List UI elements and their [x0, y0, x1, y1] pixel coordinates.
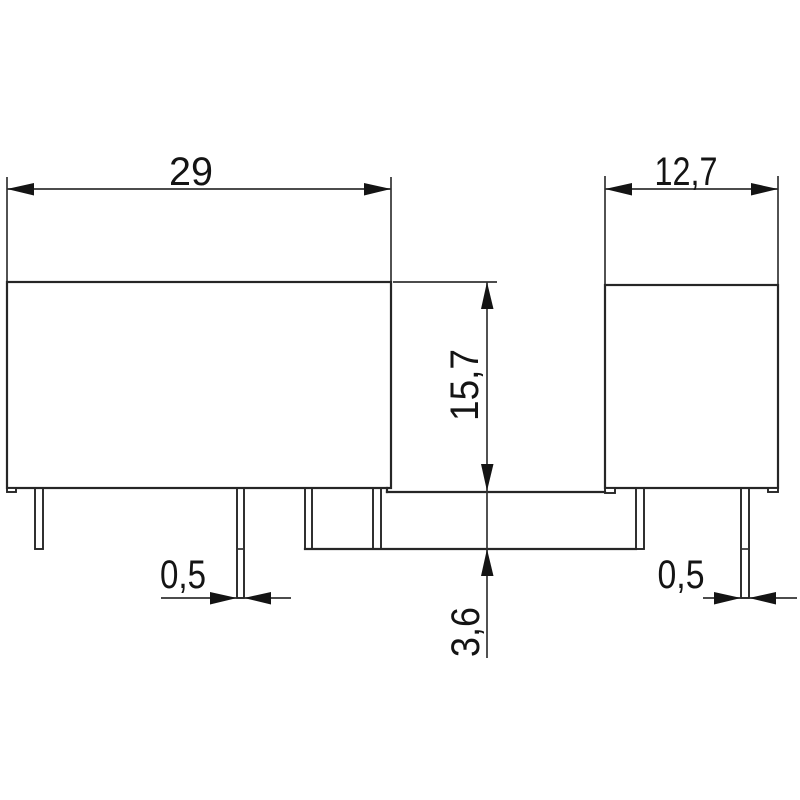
dimension-label-body-height: 15,7: [443, 349, 487, 421]
base-reference-lines: [305, 492, 636, 549]
side-view: [605, 285, 778, 598]
arrowhead-right: [714, 592, 741, 605]
side-left-foot: [605, 488, 615, 493]
side-pin-2: [741, 488, 749, 598]
dimension-label-pin-thickness-side: 0,5: [658, 553, 705, 597]
front-pin-4: [373, 488, 381, 549]
dimension-body-length: 29: [7, 150, 391, 281]
front-pin-2: [237, 488, 244, 598]
side-pin-1: [636, 488, 644, 549]
side-body-outline: [605, 285, 778, 488]
arrowhead-down: [481, 464, 494, 491]
dimension-label-pin-thickness-front: 0,5: [160, 553, 206, 597]
arrowhead-up: [481, 282, 494, 309]
arrowhead-right: [364, 183, 391, 196]
arrowhead-right: [751, 183, 778, 196]
technical-drawing-page: 29 12,7 15,7 3,6 0,: [0, 0, 800, 800]
front-view: [7, 282, 391, 598]
dimension-label-pin-protrusion: 3,6: [444, 607, 488, 657]
front-pin-1: [35, 488, 43, 549]
side-right-foot: [768, 488, 778, 492]
dimension-label-body-width: 12,7: [655, 150, 718, 194]
arrowhead-up: [481, 549, 494, 576]
arrowhead-left: [605, 183, 632, 196]
arrowhead-left: [244, 592, 271, 605]
relay-dimension-drawing: 29 12,7 15,7 3,6 0,: [0, 0, 800, 800]
dimension-body-width: 12,7: [605, 150, 778, 284]
dimension-pin-thickness-side: 0,5: [658, 553, 798, 605]
arrowhead-right: [210, 592, 237, 605]
dimension-pin-thickness-front: 0,5: [160, 553, 291, 605]
front-pin-3: [305, 488, 312, 549]
front-left-foot: [7, 488, 16, 492]
arrowhead-left: [749, 592, 776, 605]
dimension-pin-protrusion: 3,6: [444, 549, 494, 657]
arrowhead-left: [7, 183, 34, 196]
dimension-body-height: 15,7: [393, 282, 497, 658]
dimension-label-body-length: 29: [169, 150, 213, 194]
front-body-outline: [7, 282, 391, 488]
